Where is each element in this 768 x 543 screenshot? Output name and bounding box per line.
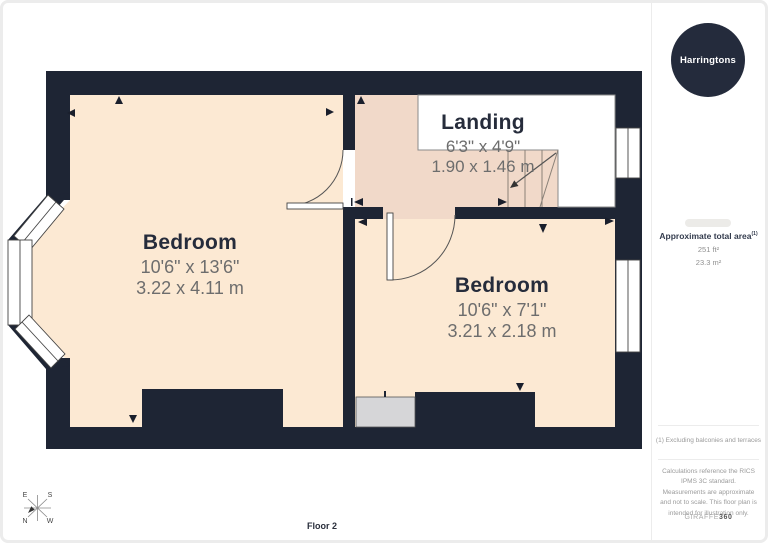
giraffe360-brand: GIRAFFE360	[652, 514, 765, 521]
room-name: Landing	[431, 111, 534, 135]
divider	[658, 425, 759, 426]
room-label-landing: Landing 6'3" x 4'9" 1.90 x 1.46 m	[431, 111, 534, 176]
chimney-breast-left	[142, 389, 283, 427]
faded-element	[685, 219, 731, 227]
room-name: Bedroom	[447, 274, 556, 298]
room-dims-imperial: 10'6" x 7'1"	[447, 300, 556, 321]
agency-logo-text: Harringtons	[680, 55, 736, 66]
room-dims-imperial: 10'6" x 13'6"	[136, 257, 244, 278]
door-leaf-bedroom-left	[287, 203, 343, 209]
wall-landing-bottom-right	[455, 207, 615, 219]
wall-middle-upper	[343, 95, 355, 150]
wall-left-lower	[46, 358, 70, 449]
room-dims-metric: 3.21 x 2.18 m	[447, 321, 556, 342]
total-area-footnote-ref: (1)	[752, 231, 758, 237]
total-area-title: Approximate total area(1)	[652, 231, 765, 241]
compass-rose: E S N W	[22, 492, 53, 525]
compass-east-label: E	[23, 492, 28, 499]
compass-south-label: S	[48, 492, 53, 499]
room-dims-metric: 1.90 x 1.46 m	[431, 157, 534, 177]
room-label-bedroom-left: Bedroom 10'6" x 13'6" 3.22 x 4.11 m	[136, 231, 244, 299]
floorplan-page: E S N W Bedroom 10'6" x 13'6" 3.22 x 4.1…	[0, 0, 768, 543]
marker-tick	[351, 198, 353, 206]
wall-top	[46, 71, 642, 95]
floor-label: Floor 2	[307, 521, 337, 531]
total-area-block: Approximate total area(1) 251 ft² 23.3 m…	[652, 231, 765, 267]
room-label-bedroom-right: Bedroom 10'6" x 7'1" 3.21 x 2.18 m	[447, 274, 556, 342]
sidebar: Harringtons Approximate total area(1) 25…	[651, 0, 765, 543]
room-dims-metric: 3.22 x 4.11 m	[136, 278, 244, 299]
agency-logo: Harringtons	[671, 23, 745, 97]
divider	[658, 459, 759, 460]
total-area-ft: 251 ft²	[652, 245, 765, 254]
door-leaf-bedroom-right	[387, 213, 393, 280]
compass-west-label: W	[47, 518, 54, 525]
giraffe360-brand-name: GIRAFFE	[684, 514, 719, 521]
chimney-breast-right	[415, 392, 535, 427]
compass-north-label: N	[22, 518, 27, 525]
giraffe360-brand-bold: 360	[719, 514, 732, 521]
room-name: Bedroom	[136, 231, 244, 255]
disclaimer-text: Calculations reference the RICS IPMS 3C …	[659, 467, 758, 519]
total-area-m: 23.3 m²	[652, 258, 765, 267]
room-dims-imperial: 6'3" x 4'9"	[431, 137, 534, 157]
wall-left-upper	[46, 71, 70, 200]
wall-middle-lower	[343, 207, 355, 427]
wall-landing-bottom-left	[343, 207, 383, 219]
wall-bottom	[46, 427, 642, 449]
area-footnote: (1) Excluding balconies and terraces	[652, 437, 765, 444]
